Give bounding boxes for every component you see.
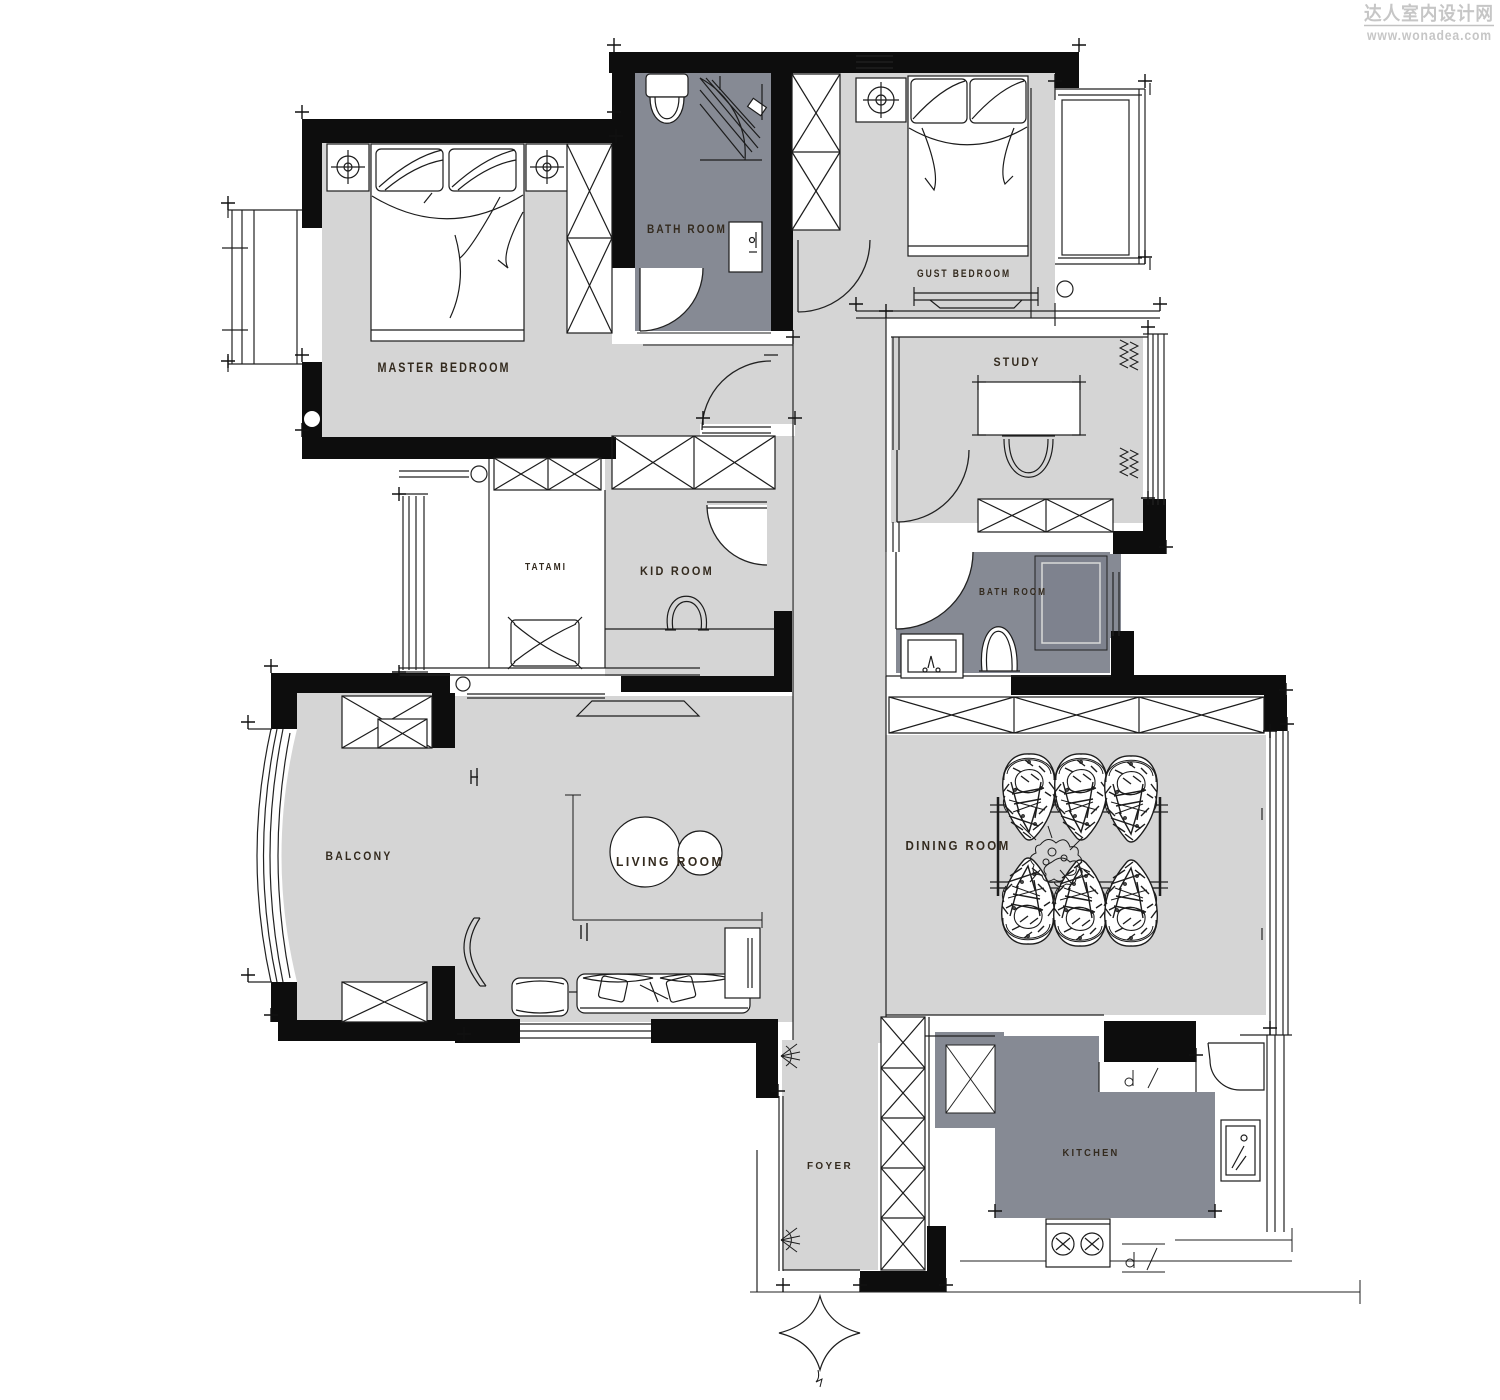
- svg-text:MASTER BEDROOM: MASTER BEDROOM: [378, 360, 511, 375]
- svg-text:DINING ROOM: DINING ROOM: [906, 839, 1011, 853]
- svg-text:达人室内设计网: 达人室内设计网: [1364, 3, 1494, 24]
- svg-text:BALCONY: BALCONY: [326, 851, 393, 863]
- svg-text:FOYER: FOYER: [807, 1160, 853, 1172]
- svg-text:GUST BEDROOM: GUST BEDROOM: [917, 268, 1011, 280]
- svg-text:LIVING ROOM: LIVING ROOM: [616, 855, 724, 869]
- svg-text:TATAMI: TATAMI: [525, 561, 567, 573]
- svg-text:www.wonadea.com: www.wonadea.com: [1366, 27, 1492, 43]
- svg-text:STUDY: STUDY: [994, 355, 1041, 369]
- svg-text:KID ROOM: KID ROOM: [640, 564, 714, 578]
- svg-text:BATH ROOM: BATH ROOM: [979, 586, 1047, 598]
- svg-text:BATH ROOM: BATH ROOM: [647, 222, 727, 236]
- svg-text:KITCHEN: KITCHEN: [1063, 1147, 1120, 1159]
